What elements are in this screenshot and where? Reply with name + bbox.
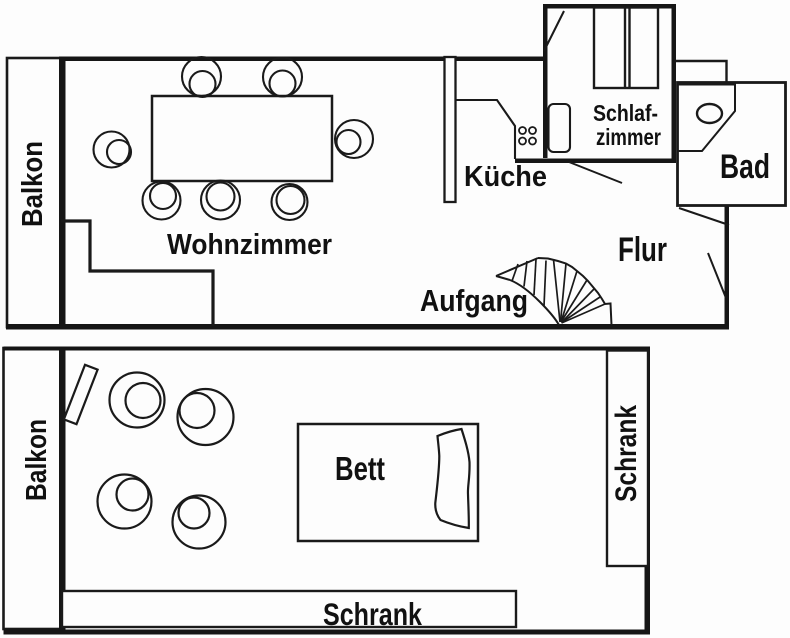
svg-text:Aufgang: Aufgang bbox=[420, 283, 528, 318]
svg-text:Balkon: Balkon bbox=[17, 141, 49, 227]
svg-text:Schlaf-: Schlaf- bbox=[593, 100, 658, 126]
svg-text:Wohnzimmer: Wohnzimmer bbox=[167, 229, 332, 261]
svg-text:Schrank: Schrank bbox=[323, 596, 422, 632]
svg-text:zimmer: zimmer bbox=[596, 124, 661, 150]
svg-text:Flur: Flur bbox=[618, 231, 667, 269]
svg-text:Bett: Bett bbox=[335, 450, 385, 487]
svg-text:Bad: Bad bbox=[720, 148, 770, 186]
svg-text:Balkon: Balkon bbox=[21, 419, 53, 501]
svg-text:Schrank: Schrank bbox=[610, 405, 643, 502]
svg-text:Küche: Küche bbox=[464, 161, 547, 193]
